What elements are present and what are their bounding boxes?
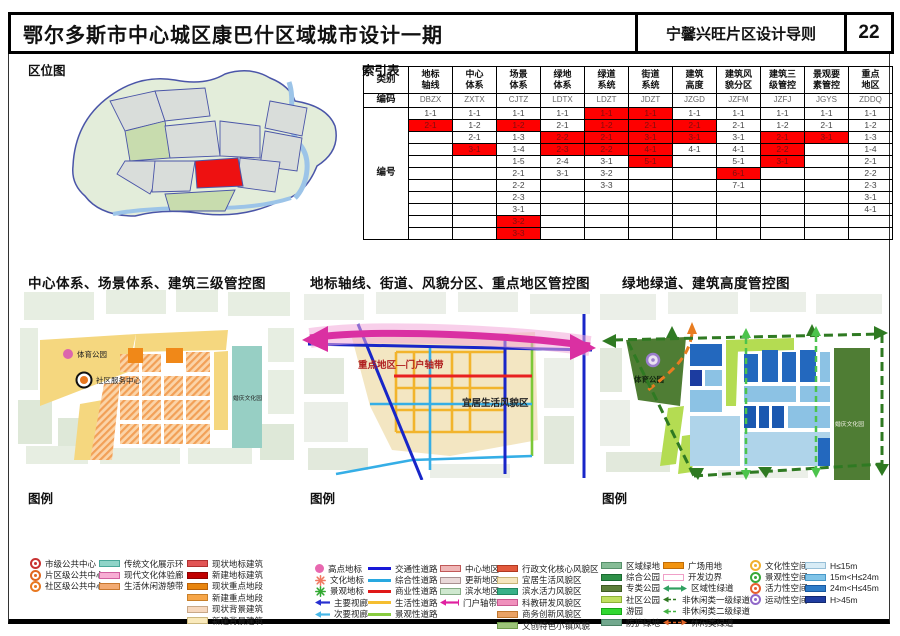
- index-cell: [717, 228, 761, 240]
- legend-label: 生活性道路: [395, 597, 438, 609]
- index-cell: 3-2: [497, 216, 541, 228]
- legend-item: 游园: [601, 606, 663, 617]
- index-cell: [629, 180, 673, 192]
- legend-label: 科教研发风貌区: [522, 597, 582, 609]
- legend-label: 广场用地: [688, 560, 722, 572]
- legend-item: 现状重点地段: [187, 581, 263, 592]
- index-cell: [409, 144, 453, 156]
- legend-label: 社区公园: [626, 594, 660, 606]
- legend-item: 社区公园: [601, 594, 663, 605]
- index-cell: [761, 204, 805, 216]
- legend-item: 现状地标建筑: [187, 558, 263, 569]
- legend-column: 市级公共中心片区级公共中心社区级公共中心: [30, 558, 99, 592]
- index-cell: 2-2: [849, 168, 893, 180]
- index-cell: 2-1: [717, 120, 761, 132]
- star-icon: [315, 575, 326, 586]
- road-line-icon: [368, 613, 391, 616]
- index-cell: 1-1: [541, 108, 585, 120]
- index-cell: [673, 216, 717, 228]
- index-cell: [409, 216, 453, 228]
- index-cell: [585, 192, 629, 204]
- index-cell: 7-1: [717, 180, 761, 192]
- double-arrow-icon: [440, 598, 459, 607]
- row-header-number: 编号: [364, 108, 409, 240]
- legend-item: 滨水地区: [440, 586, 497, 597]
- legend1-label: 图例: [28, 488, 53, 507]
- legend-item: 行政文化核心风貌区: [497, 563, 599, 574]
- legend-label: 区域绿地: [626, 560, 660, 572]
- legend-item: 滨水活力风貌区: [497, 586, 599, 597]
- index-cell: 3-1: [849, 192, 893, 204]
- index-cell: 2-2: [585, 144, 629, 156]
- swatch-icon: [601, 574, 622, 581]
- index-cell: [585, 228, 629, 240]
- index-cell: 2-1: [629, 120, 673, 132]
- legend-item: 传统文化展示环: [99, 558, 187, 569]
- index-cell: [805, 228, 849, 240]
- map-green-height: 体育公园 婚庆文化园: [598, 288, 890, 480]
- legend-item: 区域性绿道: [663, 583, 750, 594]
- legend-item: 景观性空间: [750, 571, 805, 582]
- legend-item: 门户轴带: [440, 597, 497, 608]
- dashed-arrow-icon: [663, 595, 678, 604]
- legend-label: 非休闲类一级绿道: [682, 594, 750, 606]
- legend-label: 交通性道路: [395, 563, 438, 575]
- community-center-label: 社区服务中心: [96, 375, 141, 385]
- legend-item: 文化性空间: [750, 560, 805, 571]
- swatch-icon: [99, 572, 120, 579]
- index-cell: [409, 204, 453, 216]
- index-cell: 1-2: [585, 120, 629, 132]
- legend-column: 区域绿地综合公园专类公园社区公园游园防护绿地: [601, 560, 663, 628]
- legend-column: 中心地区更新地区滨水地区门户轴带: [440, 563, 497, 609]
- index-col-header: 建筑高度: [673, 67, 717, 94]
- legend-label: 景观地标: [330, 585, 364, 597]
- legend-item: 商务创新风貌区: [497, 609, 599, 620]
- ring-dot-icon: [30, 570, 41, 581]
- index-cell: 1-5: [497, 156, 541, 168]
- index-cell: [453, 192, 497, 204]
- legend-label: 商务创新风貌区: [522, 608, 582, 620]
- swatch-icon: [805, 562, 826, 569]
- highlighted-district: [195, 158, 243, 188]
- index-col-header: 重点地区: [849, 67, 893, 94]
- legend-label: 开发边界: [688, 571, 722, 583]
- legend-label: 24m<H≤45m: [830, 583, 879, 593]
- legend-item: 非休闲类一级绿道: [663, 594, 750, 605]
- legend-item: 专类公园: [601, 583, 663, 594]
- index-code: LDZT: [585, 94, 629, 108]
- legend-label: 行政文化核心风貌区: [522, 563, 599, 575]
- road-line-icon: [368, 590, 391, 593]
- index-cell: [541, 228, 585, 240]
- legend-label: 主要视廊: [334, 597, 368, 609]
- index-cell: [761, 228, 805, 240]
- index-cell: 1-1: [409, 108, 453, 120]
- legend-label: 15m<H≤24m: [830, 572, 879, 582]
- index-cell: 2-2: [761, 144, 805, 156]
- index-cell: [541, 216, 585, 228]
- double-arrow-icon: [663, 584, 687, 593]
- legend-item: 市级公共中心: [30, 558, 99, 569]
- dashed-arrow-icon: [663, 618, 687, 627]
- space-dot-icon: [750, 594, 761, 605]
- index-cell: [805, 216, 849, 228]
- index-code: JGYS: [805, 94, 849, 108]
- index-cell: 3-1: [541, 168, 585, 180]
- swatch-icon: [601, 596, 622, 603]
- sports-park-label: 体育公园: [77, 349, 107, 359]
- index-cell: 1-2: [497, 120, 541, 132]
- index-cell: [761, 192, 805, 204]
- index-cell: [717, 216, 761, 228]
- index-cell: [629, 192, 673, 204]
- map-axes-streets: 重点地区—门户轴带 宜居生活风貌区: [300, 288, 598, 480]
- index-code: ZXTX: [453, 94, 497, 108]
- legend-item: 现代文化体验廊: [99, 569, 187, 580]
- index-cell: 1-2: [453, 120, 497, 132]
- legend-map2: 高点地标文化地标景观地标主要视廊次要视廊交通性道路综合性道路商业性道路生活性道路…: [315, 563, 599, 631]
- section-subtitle: 宁馨兴旺片区设计导则: [635, 15, 844, 51]
- index-cell: [805, 156, 849, 168]
- legend-item: 活力性空间: [750, 583, 805, 594]
- row-header-category: 类别: [364, 67, 409, 94]
- index-cell: [409, 180, 453, 192]
- index-cell: 1-1: [805, 108, 849, 120]
- index-cell: [717, 204, 761, 216]
- index-cell: [805, 192, 849, 204]
- index-cell: 2-1: [541, 120, 585, 132]
- index-cell: 1-3: [497, 132, 541, 144]
- index-cell: 3-3: [497, 228, 541, 240]
- legend-label: 传统文化展示环: [124, 558, 184, 570]
- legend-label: 高点地标: [328, 563, 362, 575]
- index-cell: 2-3: [497, 192, 541, 204]
- legend-item: 景观地标: [315, 586, 368, 597]
- index-cell: 3-1: [717, 132, 761, 144]
- index-cell: 1-4: [849, 144, 893, 156]
- legend-label: 现状重点地段: [212, 580, 263, 592]
- legend-label: 滨水地区: [465, 585, 499, 597]
- height-blocks: [690, 344, 830, 466]
- legend-label: 宜居生活风貌区: [522, 574, 582, 586]
- swatch-icon: [663, 574, 684, 581]
- swatch-icon: [440, 565, 461, 572]
- index-cell: 4-1: [629, 144, 673, 156]
- legend-item: 开发边界: [663, 571, 750, 582]
- ring-dot-icon: [30, 558, 41, 569]
- legend-label: 新建背景建筑: [212, 615, 263, 627]
- legend-item: 科教研发风貌区: [497, 597, 599, 608]
- road-line-icon: [368, 601, 391, 604]
- legend-map1: 市级公共中心片区级公共中心社区级公共中心传统文化展示环现代文化体验廊生活休闲游憩…: [30, 558, 263, 626]
- index-cell: 6-1: [717, 168, 761, 180]
- legend-label: 门户轴带: [463, 597, 497, 609]
- legend-label: 运动性空间: [765, 594, 808, 606]
- legend-item: 综合性道路: [368, 574, 440, 585]
- legend-item: 交通性道路: [368, 563, 440, 574]
- legend-item: 广场用地: [663, 560, 750, 571]
- index-col-header: 场景体系: [497, 67, 541, 94]
- swatch-icon: [663, 562, 684, 569]
- index-cell: 2-1: [409, 120, 453, 132]
- index-cell: [409, 156, 453, 168]
- legend-item: 24m<H≤45m: [805, 583, 879, 594]
- leisure-greenway-arrow: [687, 322, 697, 334]
- index-cell: 2-2: [497, 180, 541, 192]
- legend-label: 景观性道路: [395, 608, 438, 620]
- legend-item: 更新地区: [440, 574, 497, 585]
- index-cell: 3-2: [585, 168, 629, 180]
- legend-label: 市级公共中心: [45, 558, 96, 570]
- community-center-marker: [77, 373, 92, 388]
- legend-label: 片区级公共中心: [45, 569, 105, 581]
- swatch-icon: [187, 560, 208, 567]
- sports-park-marker: [647, 354, 659, 366]
- swatch-icon: [440, 588, 461, 595]
- legend-item: 非休闲类二级绿道: [663, 606, 750, 617]
- legend-label: H≤15m: [830, 561, 857, 571]
- swatch-icon: [601, 608, 622, 615]
- index-cell: 3-1: [585, 156, 629, 168]
- legend-label: 新建重点地段: [212, 592, 263, 604]
- index-cell: 3-1: [761, 156, 805, 168]
- index-code: JZFJ: [761, 94, 805, 108]
- wedding-park-label: 婚庆文化园: [233, 394, 262, 402]
- index-cell: [805, 204, 849, 216]
- legend-label: 现代文化体验廊: [124, 569, 184, 581]
- index-cell: 1-1: [761, 108, 805, 120]
- legend-item: 生活休闲游憩带: [99, 581, 187, 592]
- legend-item: 文化地标: [315, 574, 368, 585]
- index-cell: 4-1: [717, 144, 761, 156]
- legend-label: 专类公园: [626, 582, 660, 594]
- index-cell: [805, 168, 849, 180]
- legend3-label: 图例: [602, 488, 627, 507]
- space-dot-icon: [750, 560, 761, 571]
- index-col-header: 绿地体系: [541, 67, 585, 94]
- wedding-park-label: 婚庆文化园: [835, 420, 864, 428]
- legend-column: 高点地标文化地标景观地标主要视廊次要视廊: [315, 563, 368, 620]
- index-cell: [409, 228, 453, 240]
- legend-item: 高点地标: [315, 563, 368, 574]
- legend-label: 现状地标建筑: [212, 558, 263, 570]
- legend-item: 新建地标建筑: [187, 569, 263, 580]
- district-area: [352, 332, 538, 456]
- legend-label: 更新地区: [465, 574, 499, 586]
- swatch-icon: [805, 585, 826, 592]
- legend-column: 广场用地开发边界区域性绿道非休闲类一级绿道非休闲类二级绿道休闲类绿道: [663, 560, 750, 628]
- legend-column: 传统文化展示环现代文化体验廊生活休闲游憩带: [99, 558, 187, 592]
- road-line-icon: [368, 579, 391, 582]
- swatch-icon: [497, 588, 518, 595]
- index-cell: [629, 168, 673, 180]
- legend-item: 防护绿地: [601, 617, 663, 628]
- legend-label: 区域性绿道: [691, 582, 734, 594]
- index-cell: 3-1: [497, 204, 541, 216]
- index-col-header: 建筑三级管控: [761, 67, 805, 94]
- index-cell: 2-1: [497, 168, 541, 180]
- index-cell: [761, 168, 805, 180]
- index-cell: [805, 180, 849, 192]
- index-cell: [629, 204, 673, 216]
- index-cell: 2-4: [541, 156, 585, 168]
- legend-item: 新建重点地段: [187, 592, 263, 603]
- index-code: ZDDQ: [849, 94, 893, 108]
- dot-icon: [315, 564, 324, 573]
- swatch-icon: [497, 565, 518, 572]
- legend-item: 中心地区: [440, 563, 497, 574]
- legend-item: 主要视廊: [315, 597, 368, 608]
- index-cell: [453, 228, 497, 240]
- legend-label: 综合性道路: [395, 574, 438, 586]
- swatch-icon: [187, 617, 208, 624]
- index-cell: [673, 204, 717, 216]
- index-cell: [453, 156, 497, 168]
- index-cell: 3-3: [585, 180, 629, 192]
- index-cell: 2-1: [805, 120, 849, 132]
- legend-item: 次要视廊: [315, 609, 368, 620]
- swatch-icon: [187, 594, 208, 601]
- legend-label: 社区级公共中心: [45, 580, 105, 592]
- legend-label: 次要视廊: [334, 608, 368, 620]
- index-code: JZGD: [673, 94, 717, 108]
- ring-dot-icon: [30, 581, 41, 592]
- index-cell: [453, 180, 497, 192]
- legend-label: 非休闲类二级绿道: [682, 605, 750, 617]
- legend-item: 休闲类绿道: [663, 617, 750, 628]
- index-cell: 1-1: [585, 108, 629, 120]
- legend-item: 运动性空间: [750, 594, 805, 605]
- header-bar: 鄂尔多斯市中心城区康巴什区域城市设计一期 宁馨兴旺片区设计导则 22: [8, 12, 894, 54]
- legend-item: 生活性道路: [368, 597, 440, 608]
- legend-label: 新建地标建筑: [212, 569, 263, 581]
- index-cell: 1-3: [849, 132, 893, 144]
- swatch-icon: [601, 585, 622, 592]
- index-col-header: 绿道系统: [585, 67, 629, 94]
- index-cell: [717, 192, 761, 204]
- legend-label: 休闲类绿道: [691, 617, 734, 629]
- axis-label: 重点地区—门户轴带: [358, 359, 444, 371]
- star-icon: [315, 586, 326, 597]
- index-cell: [585, 204, 629, 216]
- legend-map3: 区域绿地综合公园专类公园社区公园游园防护绿地广场用地开发边界区域性绿道非休闲类一…: [601, 560, 879, 628]
- index-code: DBZX: [409, 94, 453, 108]
- index-cell: [541, 180, 585, 192]
- swatch-icon: [497, 599, 518, 606]
- index-cell: 2-2: [541, 132, 585, 144]
- livable-zone-label: 宜居生活风貌区: [462, 397, 529, 409]
- legend-label: 综合公园: [626, 571, 660, 583]
- index-cell: [673, 180, 717, 192]
- index-cell: 4-1: [849, 204, 893, 216]
- swatch-icon: [601, 562, 622, 569]
- index-col-header: 景观要素管控: [805, 67, 849, 94]
- index-code: JDZT: [629, 94, 673, 108]
- index-cell: [453, 168, 497, 180]
- legend-item: 15m<H≤24m: [805, 571, 879, 582]
- legend-item: 新建背景建筑: [187, 615, 263, 626]
- index-cell: 1-2: [849, 120, 893, 132]
- legend-label: 滨水活力风貌区: [522, 585, 582, 597]
- index-cell: [761, 216, 805, 228]
- legend-item: 社区级公共中心: [30, 581, 99, 592]
- legend-column: 文化性空间景观性空间活力性空间运动性空间: [750, 560, 805, 606]
- dashed-arrow-icon: [663, 607, 678, 616]
- index-cell: [541, 204, 585, 216]
- index-cell: [805, 144, 849, 156]
- legend-item: H>45m: [805, 594, 879, 605]
- index-col-header: 建筑风貌分区: [717, 67, 761, 94]
- index-cell: 2-3: [849, 180, 893, 192]
- legend-label: H>45m: [830, 595, 858, 605]
- swatch-icon: [601, 619, 622, 626]
- index-cell: 2-3: [541, 144, 585, 156]
- index-cell: 1-1: [849, 108, 893, 120]
- legend-label: 文创特色小镇风貌: [522, 620, 590, 632]
- legend-item: 综合公园: [601, 571, 663, 582]
- row-header-code: 编码: [364, 94, 409, 108]
- legend-item: 区域绿地: [601, 560, 663, 571]
- legend-label: 商业性道路: [395, 585, 438, 597]
- legend-label: 现状背景建筑: [212, 603, 263, 615]
- legend-column: H≤15m15m<H≤24m24m<H≤45mH>45m: [805, 560, 879, 606]
- legend-label: 游园: [626, 605, 643, 617]
- index-cell: 4-1: [673, 144, 717, 156]
- swatch-icon: [99, 583, 120, 590]
- index-col-header: 中心体系: [453, 67, 497, 94]
- index-cell: [673, 228, 717, 240]
- index-table: 类别地标轴线中心体系场景体系绿地体系绿道系统街道系统建筑高度建筑风貌分区建筑三级…: [363, 66, 893, 240]
- legend-item: 片区级公共中心: [30, 569, 99, 580]
- index-cell: 2-1: [585, 132, 629, 144]
- index-cell: [409, 132, 453, 144]
- index-cell: 1-1: [497, 108, 541, 120]
- index-cell: 3-1: [453, 144, 497, 156]
- double-arrow-icon: [315, 610, 330, 619]
- legend-column: 行政文化核心风貌区宜居生活风貌区滨水活力风貌区科教研发风貌区商务创新风貌区文创特…: [497, 563, 599, 631]
- index-cell: [585, 216, 629, 228]
- page-number: 22: [844, 15, 891, 51]
- index-cell: [849, 216, 893, 228]
- index-cell: 1-2: [761, 120, 805, 132]
- swatch-icon: [805, 574, 826, 581]
- legend-item: H≤15m: [805, 560, 879, 571]
- index-cell: 3-1: [673, 132, 717, 144]
- index-cell: [409, 168, 453, 180]
- index-cell: 1-4: [497, 144, 541, 156]
- index-cell: 1-1: [629, 108, 673, 120]
- legend-label: 文化性空间: [765, 560, 808, 572]
- sports-park-marker: [63, 349, 73, 359]
- index-cell: [673, 168, 717, 180]
- index-cell: [673, 192, 717, 204]
- swatch-icon: [497, 622, 518, 629]
- index-col-header: 街道系统: [629, 67, 673, 94]
- index-cell: [629, 216, 673, 228]
- index-cell: [541, 192, 585, 204]
- swatch-icon: [497, 611, 518, 618]
- legend-item: 文创特色小镇风貌: [497, 620, 599, 631]
- index-cell: 1-1: [717, 108, 761, 120]
- double-arrow-icon: [315, 598, 330, 607]
- page-title: 鄂尔多斯市中心城区康巴什区域城市设计一期: [11, 15, 635, 51]
- index-cell: [629, 228, 673, 240]
- road-line-icon: [368, 567, 391, 570]
- index-cell: 5-1: [629, 156, 673, 168]
- swatch-icon: [187, 606, 208, 613]
- wedding-culture-park-area: [834, 348, 870, 480]
